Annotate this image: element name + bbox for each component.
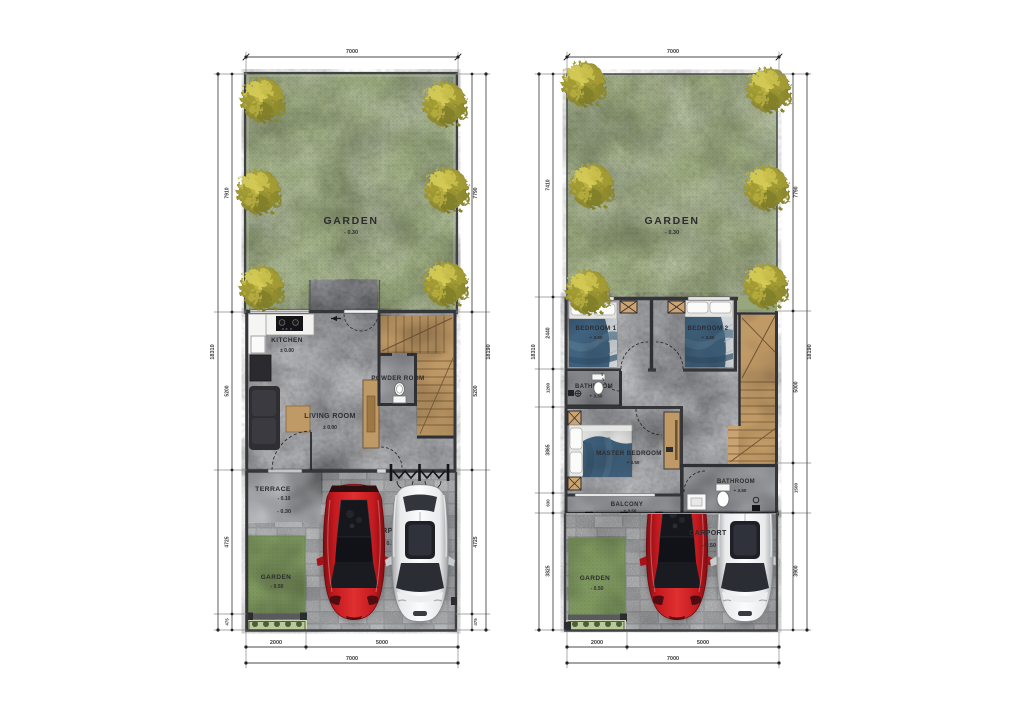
- svg-text:18190: 18190: [486, 344, 492, 359]
- svg-text:18310: 18310: [531, 344, 537, 359]
- svg-text:- 0.30: - 0.30: [277, 509, 291, 515]
- svg-text:- 0.10: - 0.10: [278, 496, 291, 502]
- svg-text:GARDEN: GARDEN: [323, 215, 378, 227]
- svg-text:7790: 7790: [473, 187, 479, 198]
- svg-text:7000: 7000: [346, 656, 358, 662]
- svg-text:5200: 5200: [225, 385, 231, 396]
- svg-text:+ 3.50: + 3.50: [590, 394, 603, 399]
- svg-text:3900: 3900: [794, 565, 800, 576]
- svg-text:- 0.50: - 0.50: [702, 543, 716, 549]
- svg-text:- 0.30: - 0.30: [344, 230, 358, 236]
- svg-text:1500: 1500: [794, 482, 799, 493]
- svg-text:KITCHEN: KITCHEN: [271, 337, 303, 344]
- svg-text:7000: 7000: [667, 656, 679, 662]
- svg-text:1200: 1200: [546, 382, 551, 393]
- svg-text:BEDROOM 2: BEDROOM 2: [687, 325, 728, 332]
- svg-text:LIVING ROOM: LIVING ROOM: [304, 413, 355, 420]
- svg-text:7410: 7410: [546, 179, 552, 190]
- svg-text:CARPORT: CARPORT: [689, 530, 727, 537]
- svg-text:- 0.50: - 0.50: [271, 584, 284, 590]
- svg-text:BALCONY: BALCONY: [611, 502, 643, 508]
- svg-text:475: 475: [473, 618, 478, 626]
- svg-text:5000: 5000: [794, 381, 800, 392]
- svg-text:GARDEN: GARDEN: [261, 574, 292, 581]
- svg-text:GARDEN: GARDEN: [580, 575, 611, 582]
- svg-text:4725: 4725: [473, 536, 479, 547]
- svg-text:+ 3.50: + 3.50: [627, 460, 640, 465]
- svg-text:+ 3.50: + 3.50: [702, 335, 715, 340]
- svg-text:7000: 7000: [346, 49, 358, 55]
- svg-text:5200: 5200: [473, 385, 479, 396]
- svg-text:± 0.00: ± 0.00: [323, 425, 337, 431]
- svg-text:2000: 2000: [270, 640, 282, 646]
- svg-text:+ 3.50: + 3.50: [590, 335, 603, 340]
- svg-text:+ 3.50: + 3.50: [734, 488, 747, 493]
- svg-text:7000: 7000: [667, 49, 679, 55]
- svg-text:7910: 7910: [225, 187, 231, 198]
- svg-text:3825: 3825: [546, 565, 552, 576]
- svg-text:TERRACE: TERRACE: [255, 486, 291, 493]
- svg-text:7790: 7790: [794, 186, 800, 197]
- svg-text:MASTER BEDROOM: MASTER BEDROOM: [596, 450, 662, 457]
- svg-text:18310: 18310: [210, 344, 216, 359]
- svg-text:2440: 2440: [546, 327, 552, 338]
- svg-text:± 0.00: ± 0.00: [280, 348, 294, 354]
- svg-text:- 0.30: - 0.30: [665, 230, 679, 236]
- svg-text:4725: 4725: [225, 536, 231, 547]
- svg-text:630: 630: [546, 499, 551, 507]
- svg-text:- 0.50: - 0.50: [591, 586, 604, 592]
- svg-text:GARDEN: GARDEN: [644, 215, 699, 227]
- svg-text:5000: 5000: [376, 640, 388, 646]
- svg-text:475: 475: [225, 618, 230, 626]
- svg-text:2000: 2000: [591, 640, 603, 646]
- svg-text:18190: 18190: [807, 344, 813, 359]
- svg-text:5000: 5000: [697, 640, 709, 646]
- svg-text:BEDROOM 1: BEDROOM 1: [575, 325, 616, 332]
- svg-text:POWDER ROOM: POWDER ROOM: [371, 375, 424, 382]
- svg-text:3865: 3865: [546, 444, 552, 455]
